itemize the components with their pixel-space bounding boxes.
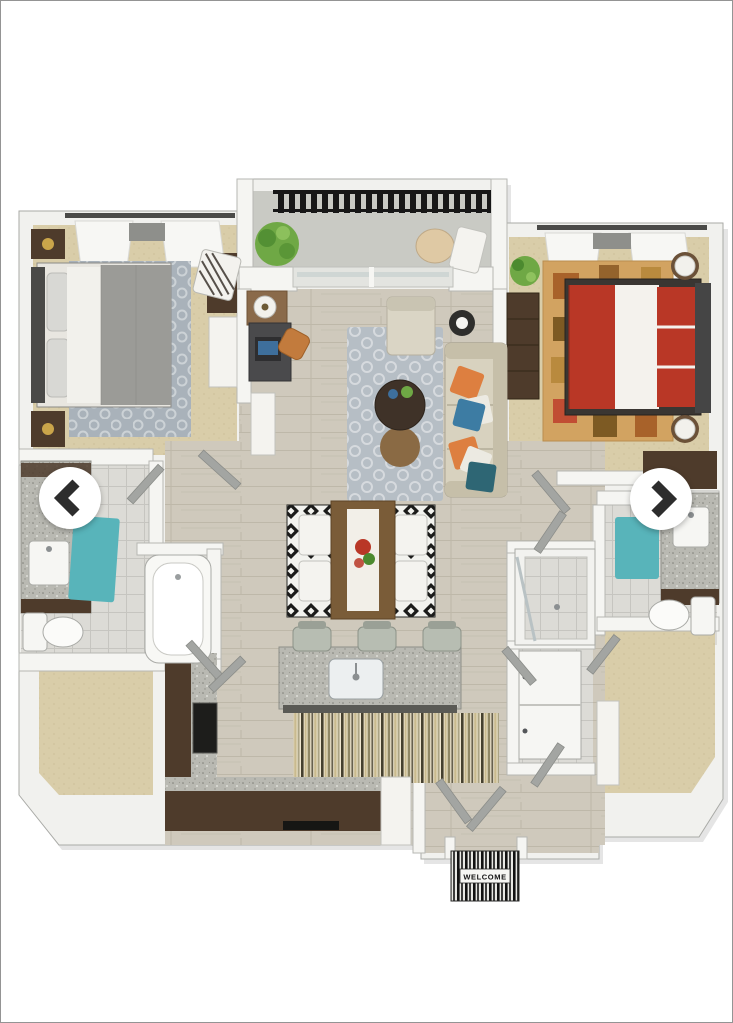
potted-plant-balcony: [255, 222, 299, 266]
wall-vent: [593, 233, 631, 249]
dresser: [507, 293, 539, 399]
nightstand-lamp: [671, 252, 699, 280]
closet-left-floor: [39, 671, 153, 795]
dining-chair: [395, 515, 427, 555]
patio-table: [416, 229, 454, 263]
wall-tv: [129, 223, 165, 241]
dining-area: [287, 501, 435, 619]
bed-left: [31, 263, 171, 407]
armchair: [387, 297, 435, 355]
lamp: [42, 423, 54, 435]
bed-right: [565, 279, 711, 415]
stove: [193, 703, 217, 753]
dining-chair: [299, 561, 331, 601]
welcome-mat-label: WELCOME: [463, 873, 506, 882]
chevron-left-icon: [39, 467, 101, 529]
tub-drain: [175, 574, 181, 580]
bar-stools: [293, 621, 461, 651]
dining-chair: [395, 561, 427, 601]
throw-pillow-teal: [465, 461, 497, 493]
walk-in-closet-right: [597, 701, 619, 785]
bar-stool: [423, 627, 461, 651]
sofa: [445, 343, 507, 497]
coffee-table: [375, 380, 425, 430]
sliding-glass-door: [293, 267, 453, 287]
curtain-rod-left: [65, 213, 235, 218]
headboard: [31, 267, 45, 403]
kitchen-island: [279, 647, 461, 713]
chevron-right-icon: [630, 468, 692, 530]
gallery-prev-button[interactable]: [39, 467, 101, 529]
nightstand-lamp: [671, 415, 699, 443]
bar-stool: [358, 627, 396, 651]
dishwasher: [283, 821, 339, 830]
dining-chair: [299, 515, 331, 555]
floor-lamp: [449, 310, 475, 336]
shower-drain: [554, 604, 560, 610]
floor-plan-viewer: WELCOME: [0, 0, 733, 1023]
kitchen-runner-rug: [293, 713, 499, 783]
console: [251, 393, 275, 455]
lamp: [42, 238, 54, 250]
curtain: [75, 221, 133, 267]
bathtub: [145, 555, 211, 663]
fridge: [381, 777, 411, 845]
welcome-mat: WELCOME: [451, 851, 519, 901]
closet-right-floor: [605, 631, 715, 793]
ottoman: [380, 427, 420, 467]
walk-in-shower: [515, 549, 595, 645]
potted-plant-bedroom: [510, 256, 540, 286]
bar-stool: [293, 627, 331, 651]
headboard: [695, 283, 711, 413]
curtain-rod-right: [537, 225, 707, 230]
gallery-next-button[interactable]: [630, 468, 692, 530]
washer-dryer: [519, 651, 581, 759]
dining-table: [331, 501, 395, 619]
faucet: [46, 546, 52, 552]
console-bedroom-left: [209, 317, 237, 387]
floor-plan-render: WELCOME: [1, 1, 733, 1023]
closet-shelf: [597, 701, 619, 785]
counter-bottom-run: [165, 777, 383, 831]
